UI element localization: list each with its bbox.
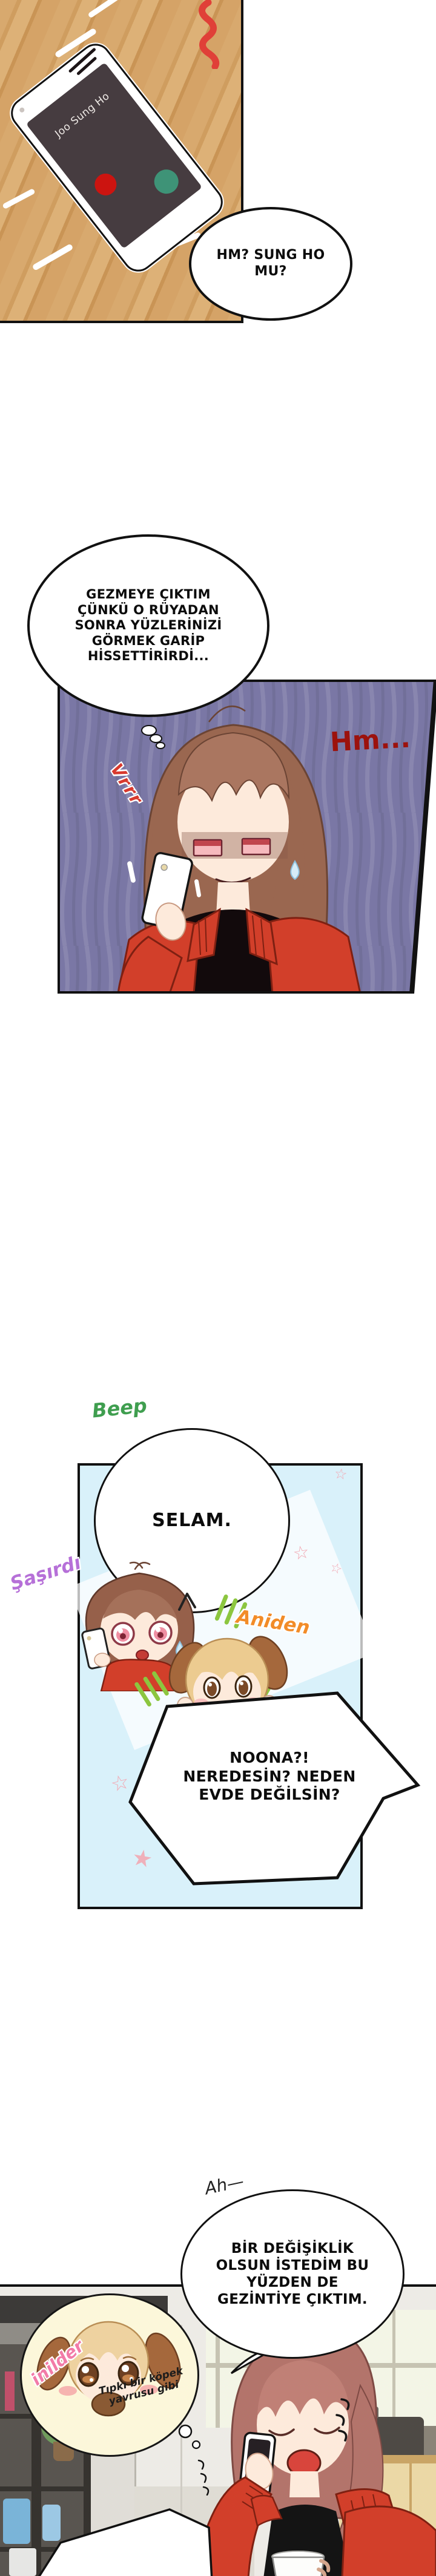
phone-camera-dot [19, 107, 25, 113]
speech-text: SELAM. [152, 1510, 232, 1532]
laugh-marks-icon [332, 2396, 358, 2443]
sfx-beep: Beep [91, 1394, 148, 1422]
surprise-spark-icon [177, 1590, 201, 1613]
comic-page: Joo Sung Ho HM? SUNG HO MU? GEZMEYE ÇIKT… [0, 0, 436, 2576]
speech-bubble-noona: NOONA?! NEREDESİN? NEDEN EVDE DEĞİLSİN? [124, 1688, 422, 1888]
incoming-call-screen: Joo Sung Ho [26, 62, 202, 249]
star-icon: ☆ [292, 1543, 311, 1564]
answer-call-icon [150, 165, 183, 198]
sfx-ah: Ah— [203, 2171, 245, 2199]
vibration-line [31, 243, 73, 271]
caller-name: Joo Sung Ho [39, 79, 125, 150]
box [9, 2548, 36, 2576]
speech-text: GEZMEYE ÇIKTIM ÇÜNKÜ O RÜYADAN SONRA YÜZ… [74, 587, 222, 664]
decline-call-icon [90, 169, 121, 200]
speech-bubble-hm: HM? SUNG HO MU? [189, 207, 352, 321]
thought-dot [156, 742, 165, 749]
speech-text: HM? SUNG HO MU? [217, 247, 325, 280]
speech-bubble-gezinti: BİR DEĞİŞİKLİK OLSUN İSTEDİM BU YÜZDEN D… [180, 2189, 405, 2359]
sfx-hm: Hm... [329, 723, 411, 758]
cup [272, 2557, 324, 2576]
speech-bubble-partial [33, 2500, 215, 2576]
vibration-squiggle-icon [193, 0, 222, 69]
vibration-line [87, 0, 119, 18]
thought-trail-icon [176, 2423, 213, 2496]
star-icon: ☆ [333, 1466, 348, 1483]
speech-text: BİR DEĞİŞİKLİK OLSUN İSTEDİM BU YÜZDEN D… [216, 2240, 369, 2308]
shelf-item [5, 2371, 15, 2411]
speech-text: NOONA?! NEREDESİN? NEDEN EVDE DEĞİLSİN? [170, 1749, 369, 1804]
speech-bubble-gezmeye: GEZMEYE ÇIKTIM ÇÜNKÜ O RÜYADAN SONRA YÜZ… [27, 534, 269, 717]
bottle [3, 2499, 30, 2544]
shelf-board [0, 2486, 91, 2491]
vibration-line [2, 188, 35, 209]
thought-bubble-puppy: inilder Tıpkı bir köpek yavrusu gibi [20, 2293, 199, 2457]
